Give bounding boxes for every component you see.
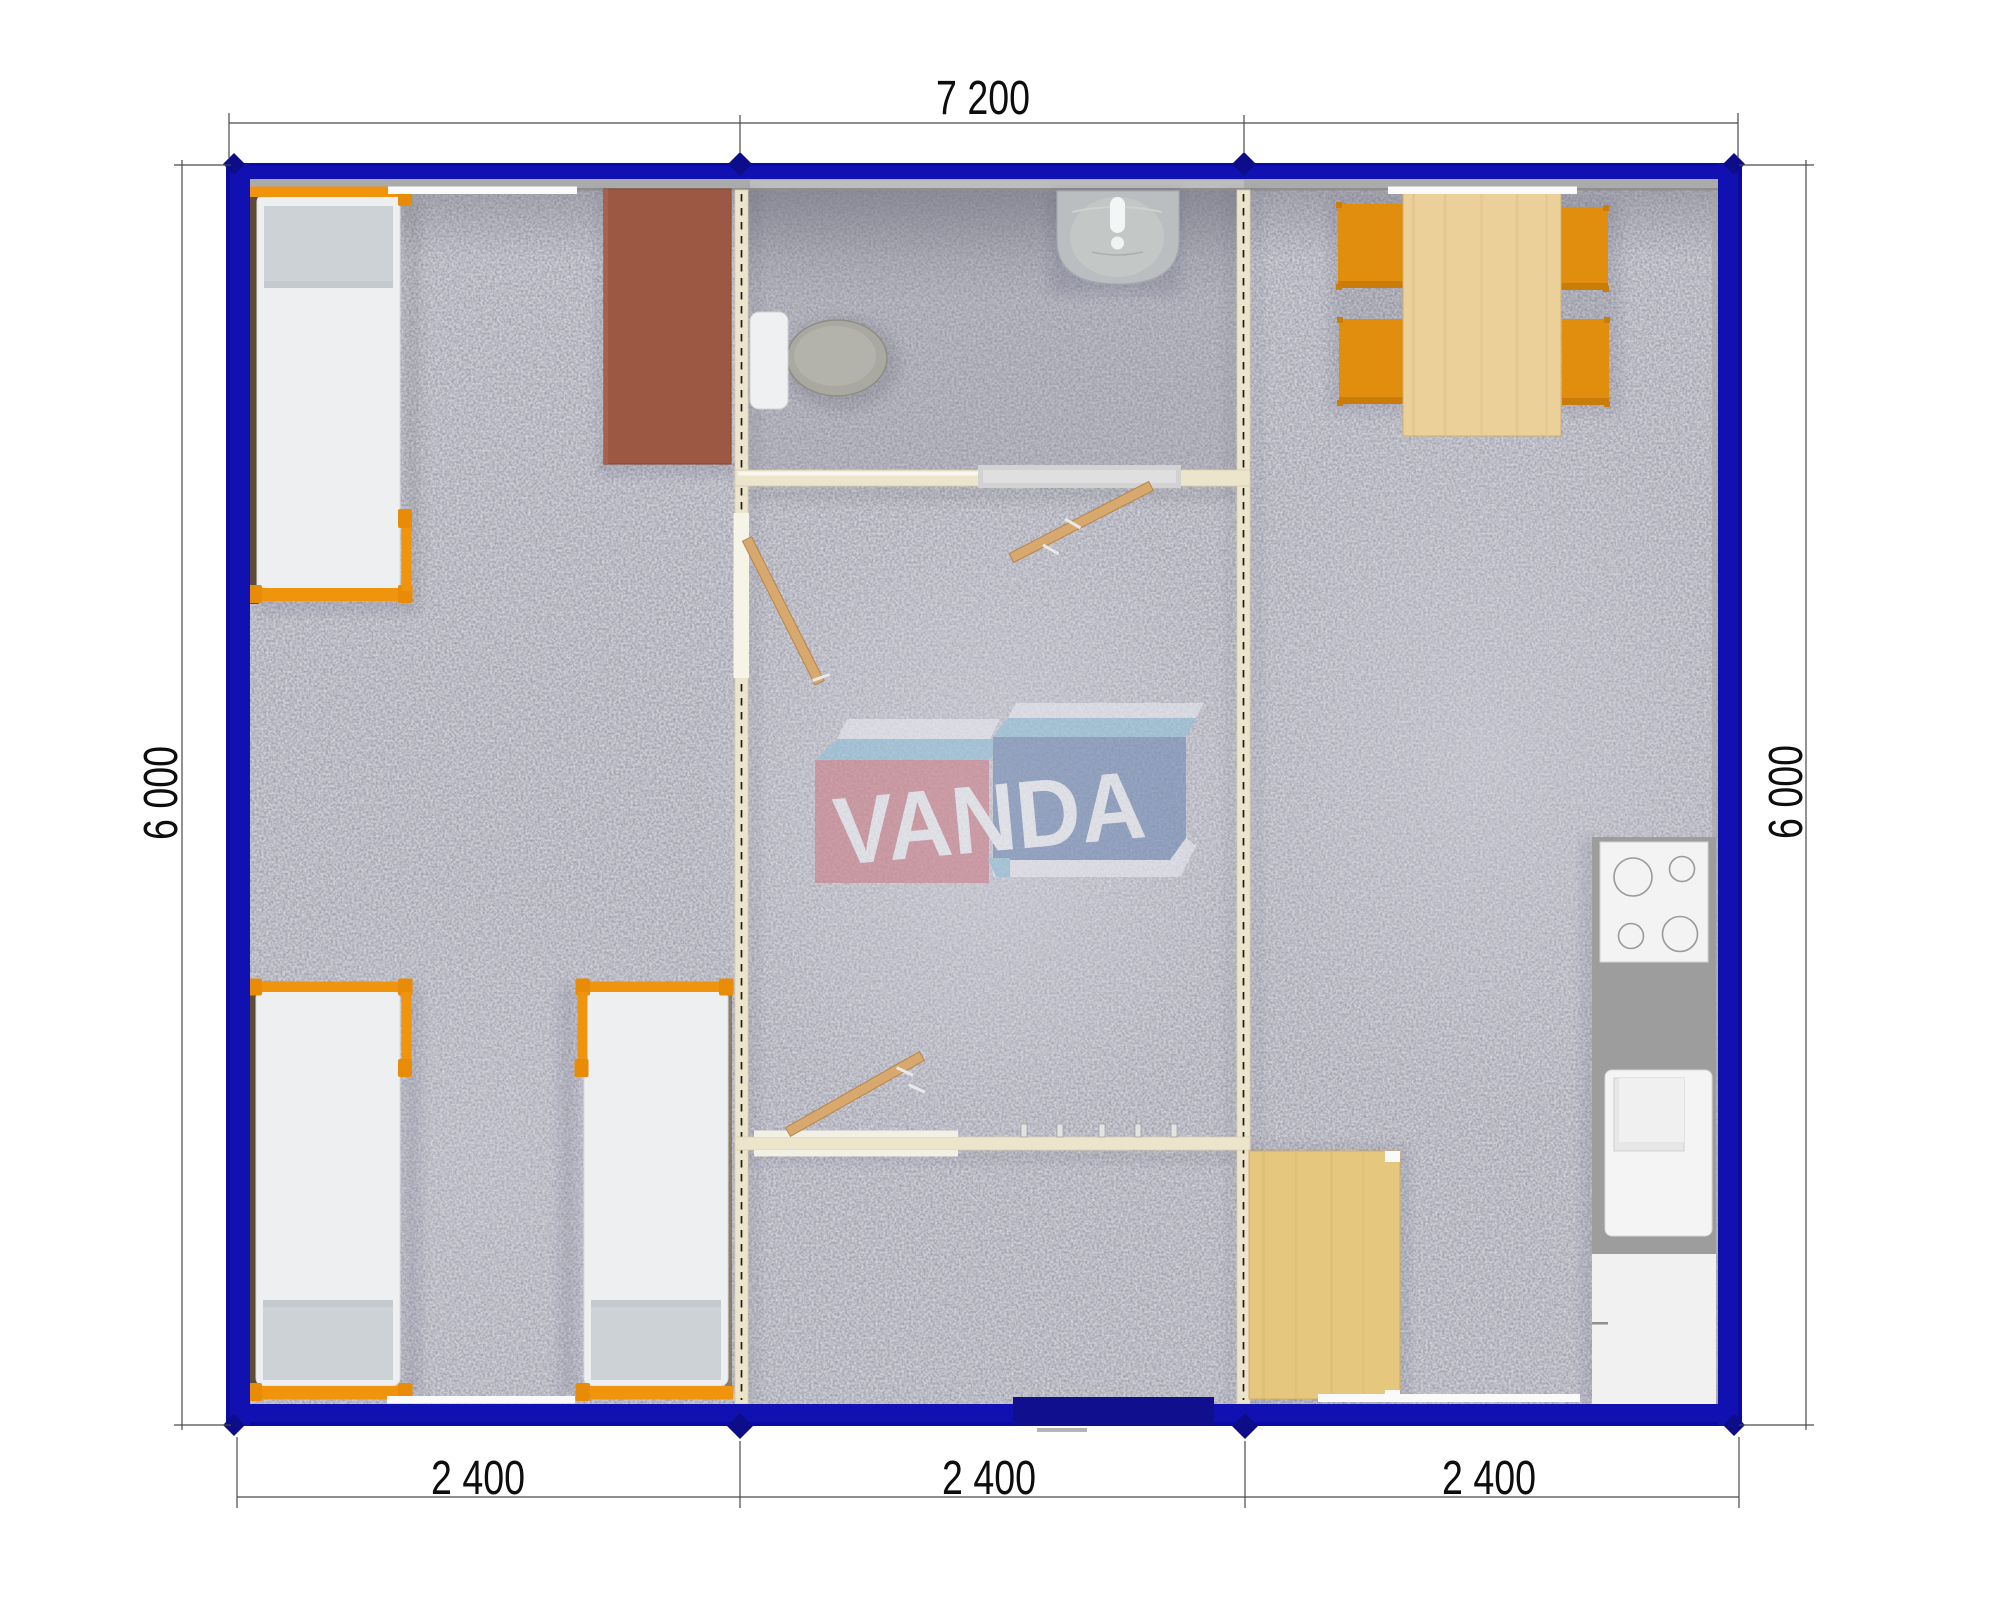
svg-text:2 400: 2 400 — [431, 1452, 525, 1505]
svg-text:2 400: 2 400 — [1442, 1452, 1536, 1505]
svg-text:6 000: 6 000 — [135, 746, 188, 840]
svg-text:6 000: 6 000 — [1760, 745, 1813, 839]
svg-text:2 400: 2 400 — [942, 1452, 1036, 1505]
svg-text:7 200: 7 200 — [936, 72, 1030, 125]
